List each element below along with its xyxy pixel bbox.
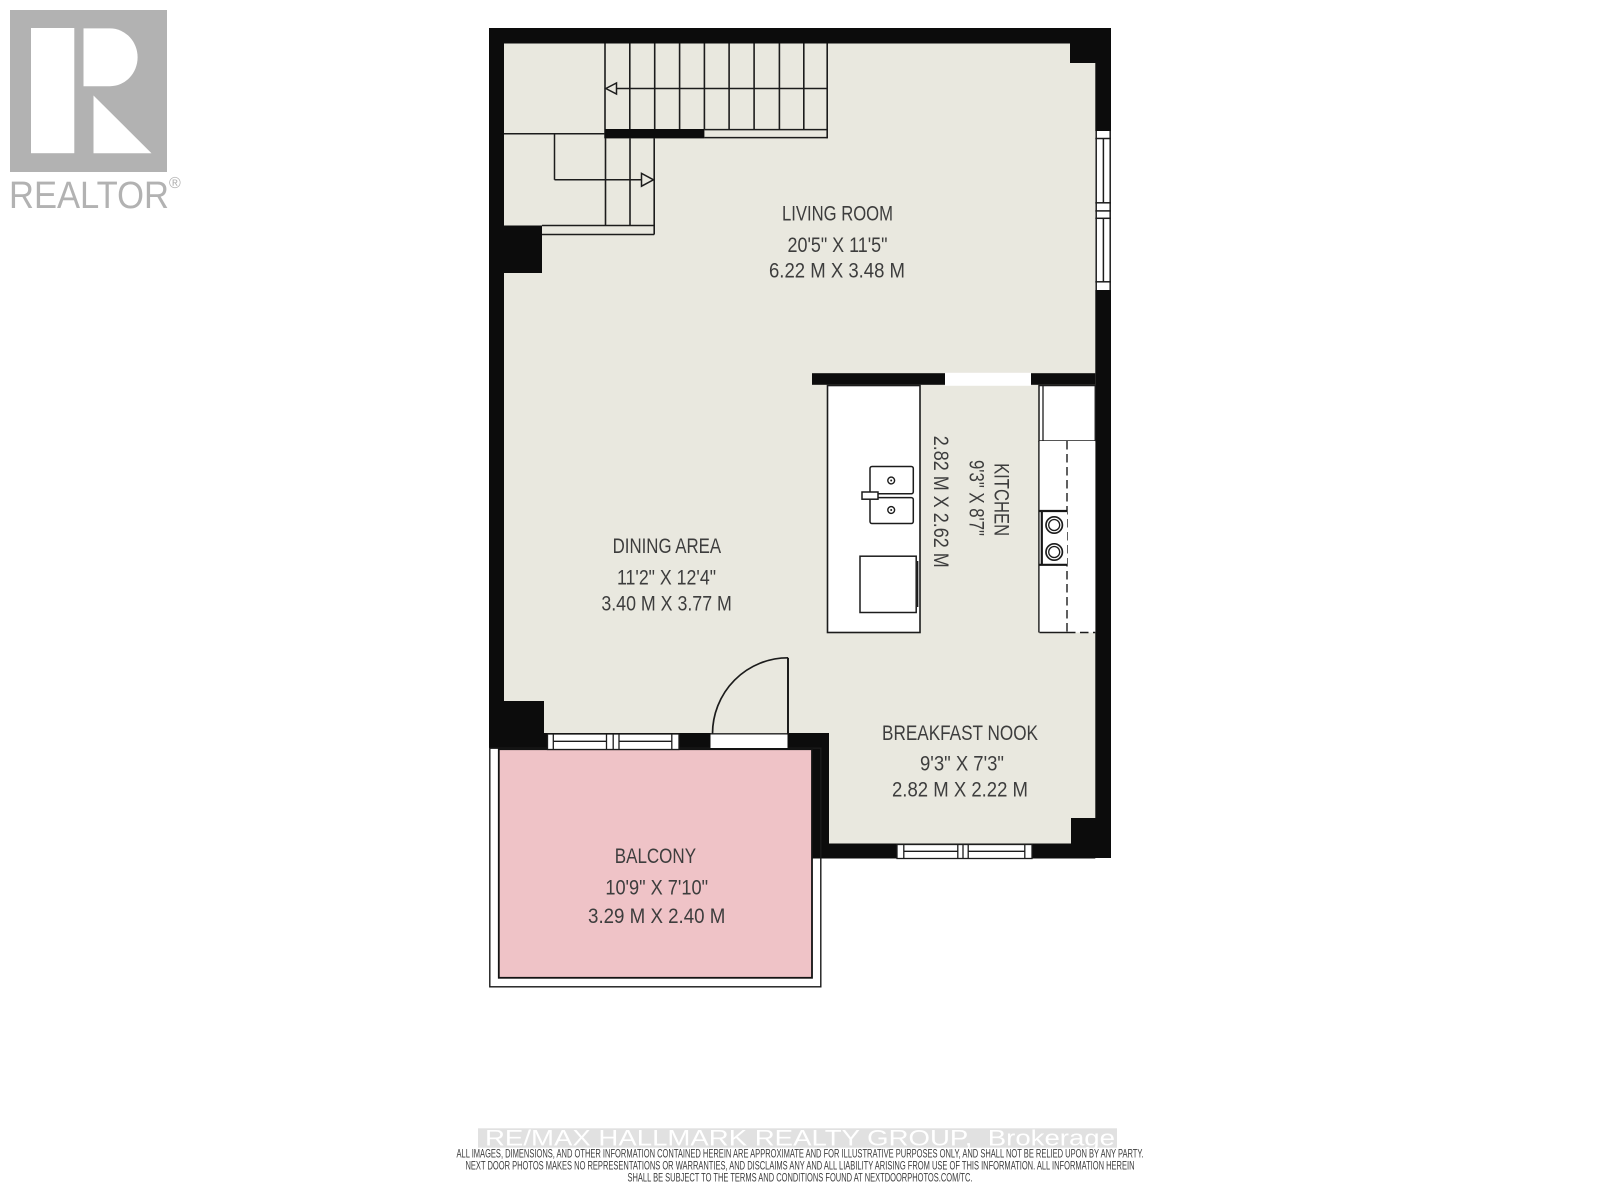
svg-text:9'3" X 7'3": 9'3" X 7'3" xyxy=(920,752,1004,776)
svg-text:2.82 M X 2.62 M: 2.82 M X 2.62 M xyxy=(929,436,953,568)
svg-text:®: ® xyxy=(169,175,181,192)
svg-text:6.22 M X 3.48 M: 6.22 M X 3.48 M xyxy=(769,259,905,283)
svg-text:2.82 M X 2.22 M: 2.82 M X 2.22 M xyxy=(892,778,1028,802)
svg-text:KITCHEN: KITCHEN xyxy=(990,463,1014,536)
svg-text:BREAKFAST NOOK: BREAKFAST NOOK xyxy=(882,721,1039,745)
svg-text:BALCONY: BALCONY xyxy=(615,844,696,868)
svg-text:3.40 M X 3.77 M: 3.40 M X 3.77 M xyxy=(601,592,732,616)
svg-text:LIVING ROOM: LIVING ROOM xyxy=(782,201,893,225)
svg-text:DINING AREA: DINING AREA xyxy=(613,534,722,558)
svg-text:20'5" X 11'5": 20'5" X 11'5" xyxy=(788,233,888,257)
svg-text:9'3" X 8'7": 9'3" X 8'7" xyxy=(964,460,988,536)
svg-text:10'9" X 7'10": 10'9" X 7'10" xyxy=(605,876,708,900)
svg-text:REALTOR: REALTOR xyxy=(9,175,169,217)
svg-text:11'2" X 12'4": 11'2" X 12'4" xyxy=(617,565,716,589)
svg-text:3.29 M X 2.40 M: 3.29 M X 2.40 M xyxy=(588,904,725,928)
svg-text:SHALL BE SUBJECT TO THE TERMS: SHALL BE SUBJECT TO THE TERMS AND CONDIT… xyxy=(628,1171,973,1185)
